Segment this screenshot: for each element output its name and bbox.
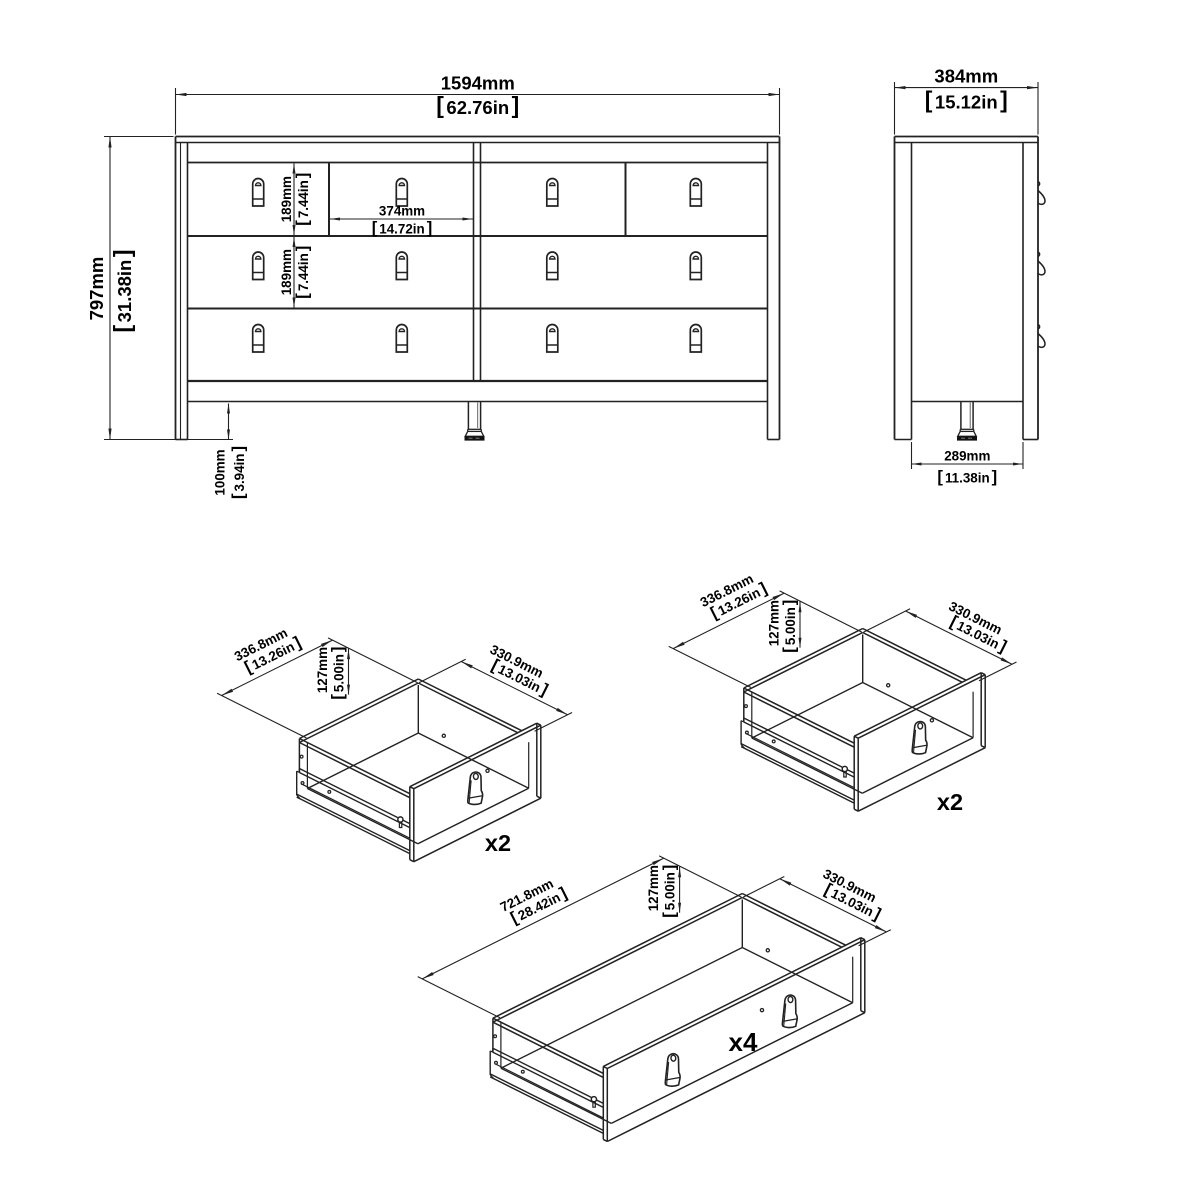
- svg-text:100mm: 100mm: [213, 449, 228, 495]
- svg-text:1594mm: 1594mm: [441, 73, 515, 94]
- svg-text:[11.38in]: [11.38in]: [937, 467, 997, 486]
- svg-text:x4: x4: [729, 1027, 758, 1057]
- svg-text:[7.44in]: [7.44in]: [292, 246, 311, 299]
- svg-text:289mm: 289mm: [944, 449, 990, 464]
- svg-text:797mm: 797mm: [86, 257, 107, 321]
- svg-text:[5.00in]: [5.00in]: [659, 865, 678, 918]
- svg-text:[62.76in]: [62.76in]: [436, 92, 519, 118]
- svg-text:[15.12in]: [15.12in]: [925, 87, 1008, 113]
- svg-text:127mm: 127mm: [767, 600, 782, 646]
- svg-text:[14.72in]: [14.72in]: [372, 218, 432, 237]
- svg-text:374mm: 374mm: [379, 204, 425, 219]
- svg-text:[31.38in]: [31.38in]: [109, 250, 135, 333]
- svg-text:[3.94in]: [3.94in]: [228, 446, 247, 499]
- svg-text:x2: x2: [485, 830, 511, 856]
- svg-text:189mm: 189mm: [279, 176, 294, 222]
- svg-text:x2: x2: [937, 789, 963, 815]
- svg-text:127mm: 127mm: [315, 647, 330, 693]
- svg-text:[5.00in]: [5.00in]: [779, 600, 798, 653]
- svg-text:[7.44in]: [7.44in]: [292, 173, 311, 226]
- svg-text:384mm: 384mm: [934, 66, 998, 87]
- svg-text:189mm: 189mm: [279, 249, 294, 295]
- svg-text:[5.00in]: [5.00in]: [328, 647, 347, 700]
- svg-text:127mm: 127mm: [646, 865, 661, 911]
